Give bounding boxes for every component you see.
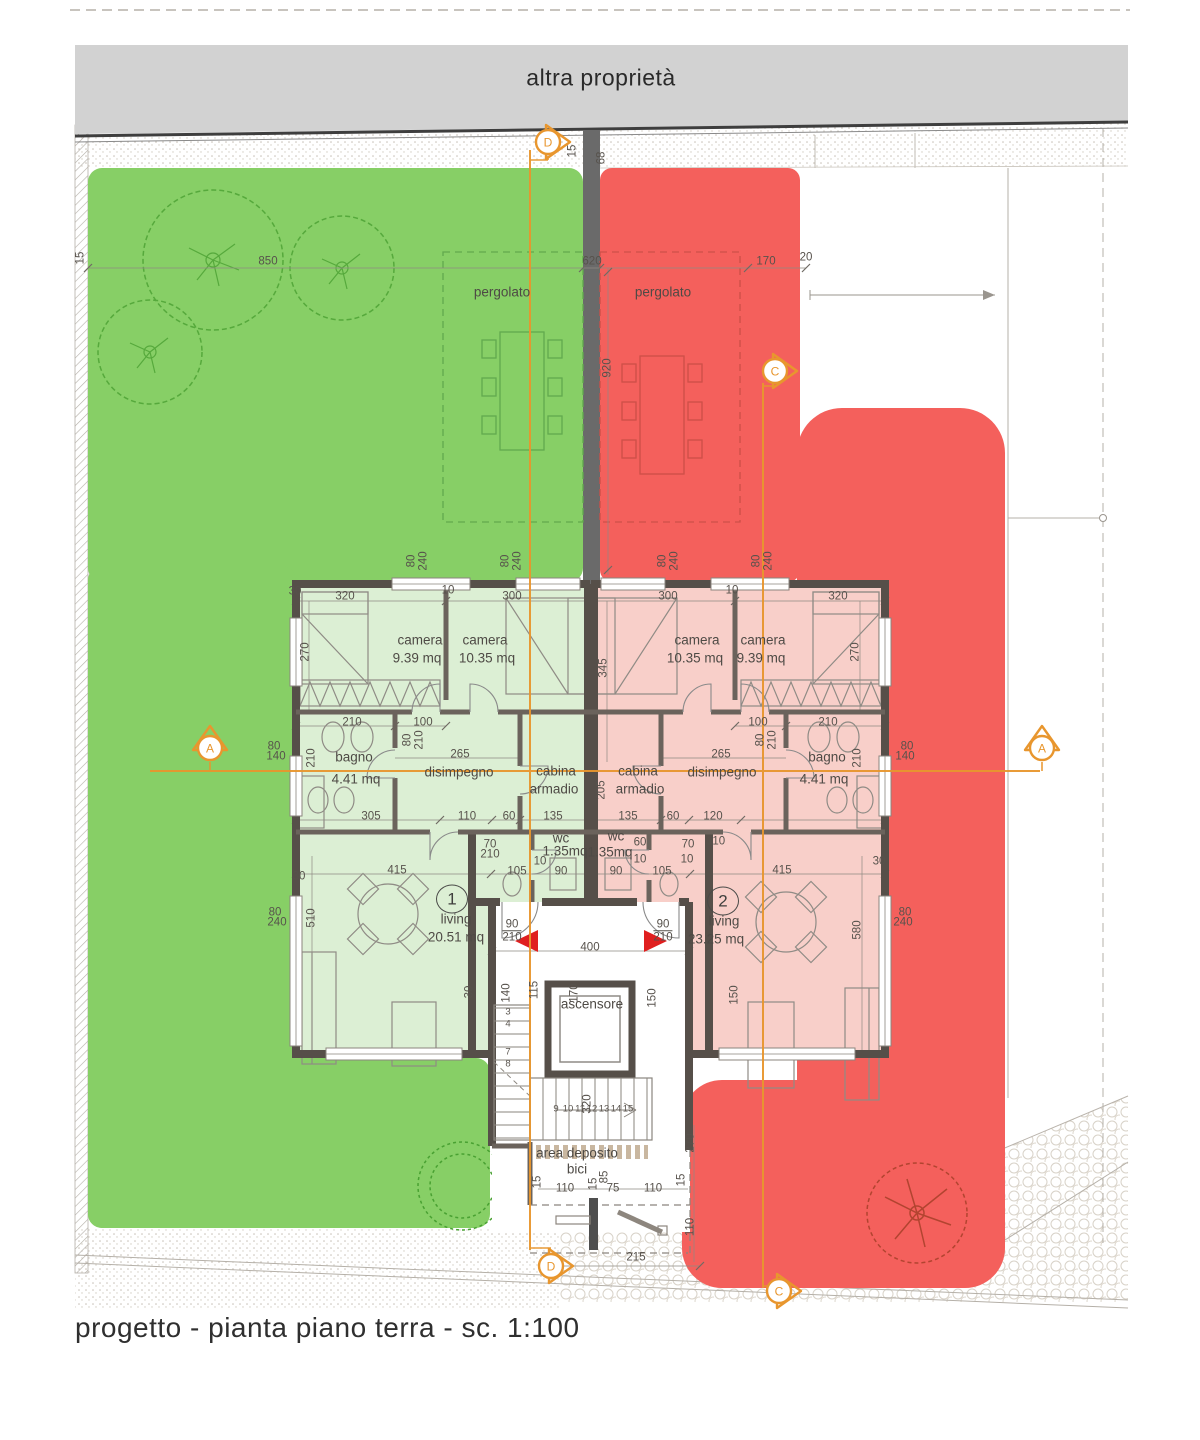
site-plan-drawing: D D C C A A [0, 0, 1200, 1440]
section-marker-letter: C [775, 1285, 784, 1299]
section-marker-letter: A [1038, 742, 1046, 756]
section-marker-letter: C [771, 365, 780, 379]
section-marker-letter: D [544, 136, 553, 150]
garden-divider-wall [583, 130, 600, 584]
section-marker-a-right: A [1025, 726, 1059, 760]
section-marker-letter: A [206, 742, 214, 756]
section-marker-letter: D [547, 1260, 556, 1274]
neighbor-band-label: altra proprietà [526, 65, 675, 92]
floor-plan-page: D D C C A A 8501562092017020156830320300… [0, 0, 1200, 1440]
elevator [548, 984, 632, 1074]
drawing-title: progetto - pianta piano terra - sc. 1:10… [75, 1312, 580, 1344]
party-wall [584, 584, 598, 902]
